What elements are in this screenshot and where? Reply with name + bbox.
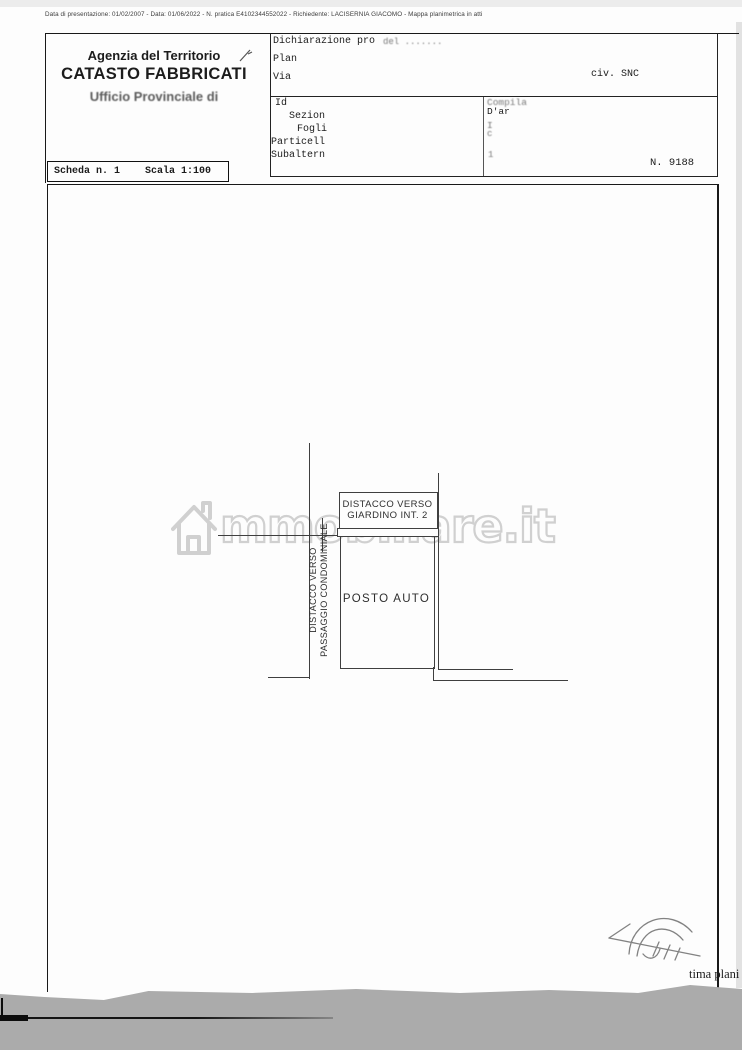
condo-passage-setback-label: DISTACCO VERSO PASSAGGIO CONDOMINIALE: [308, 515, 330, 665]
compiler-line-5: 1: [488, 150, 493, 160]
scanned-cadastral-sheet: Data di presentazione: 01/02/2007 - Data…: [0, 0, 742, 1050]
street-line: Via: [273, 72, 291, 83]
frame-left-rule: [47, 184, 49, 992]
identifier-row-sezione: Sezion: [289, 111, 325, 122]
frame-right-rule: [717, 184, 719, 996]
parking-space-label: POSTO AUTO: [340, 594, 433, 605]
header-top-rule: [45, 33, 739, 35]
garden-setback-label-line2: GIARDINO INT. 2: [339, 510, 436, 521]
compiler-line-2: D'ar: [487, 106, 510, 117]
scan-top-edge: [0, 0, 742, 7]
presentation-meta-line: Data di presentazione: 01/02/2007 - Data…: [45, 11, 482, 18]
scale-label: Scala 1:100: [145, 166, 211, 177]
identifiers-divider-rule: [483, 97, 484, 176]
identifier-row-particella: Particell: [271, 137, 325, 148]
declaration-line-faded: del .......: [383, 37, 442, 47]
compiler-line-4: c: [487, 129, 492, 139]
condo-passage-setback-line2: PASSAGGIO CONDOMINIALE: [319, 515, 330, 665]
plan-right-inner-floor-line: [438, 669, 513, 670]
signature-squiggle: [603, 898, 708, 970]
pen-tick-mark: [238, 47, 254, 65]
garden-setback-label-line1: DISTACCO VERSO: [339, 499, 436, 510]
plan-right-outer-floor-line: [434, 680, 568, 681]
parking-right-wall-extension: [433, 667, 434, 681]
declaration-box-right-rule: [717, 33, 718, 177]
condo-passage-setback-line1: DISTACCO VERSO: [308, 515, 319, 665]
plan-right-wall: [438, 473, 439, 670]
identifier-row-subalterno: Subaltern: [271, 150, 325, 161]
scan-background-bottom: [0, 980, 742, 1050]
ink-mark-thick: [0, 1015, 28, 1021]
footer-note: tima plani: [689, 967, 739, 982]
identifiers-title: Id: [275, 98, 287, 109]
ink-mark-line: [28, 1017, 333, 1019]
declaration-box-bottom-rule: [270, 176, 718, 177]
scan-right-edge: [736, 22, 742, 988]
frame-top-rule: [47, 184, 719, 186]
agency-name: Agenzia del Territorio: [58, 48, 250, 63]
declaration-line: Dichiarazione pro: [273, 36, 375, 47]
civic-number: civ. SNC: [591, 69, 639, 80]
sheet-protocol-number: N. 9188: [650, 157, 694, 169]
office-line: Ufficio Provinciale di: [58, 89, 250, 104]
registry-title: CATASTO FABBRICATI: [58, 65, 250, 84]
identifier-row-foglio: Fogli: [297, 124, 327, 135]
house-icon: [168, 497, 220, 557]
plan-bottom-left-wall: [268, 677, 310, 678]
ink-mark-vertical-tick: [1, 998, 3, 1020]
sheet-number-label: Scheda n. 1: [54, 166, 120, 177]
planimetry-line: Plan: [273, 54, 297, 65]
